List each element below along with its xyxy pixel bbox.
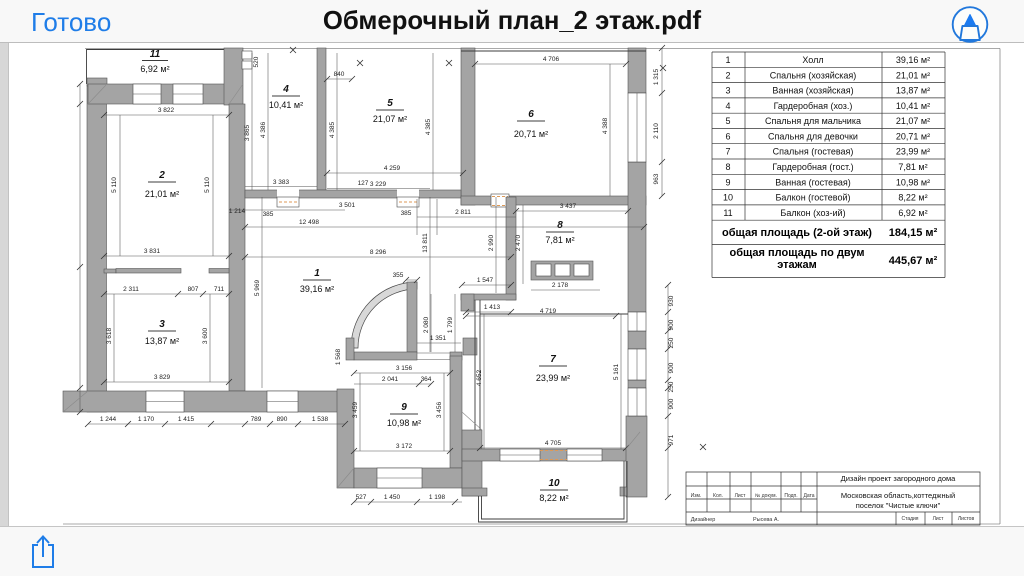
svg-text:3 831: 3 831	[144, 248, 161, 255]
svg-text:Стадия: Стадия	[901, 516, 918, 522]
svg-text:13,87 м²: 13,87 м²	[145, 336, 179, 346]
svg-text:527: 527	[356, 494, 367, 501]
svg-text:3 459: 3 459	[352, 401, 359, 418]
svg-text:5: 5	[387, 98, 393, 109]
svg-text:4 388: 4 388	[602, 117, 609, 134]
svg-text:4 652: 4 652	[476, 369, 483, 386]
svg-text:2 990: 2 990	[488, 234, 495, 251]
svg-text:21,01 м²: 21,01 м²	[145, 189, 179, 199]
svg-text:6,92 м²: 6,92 м²	[898, 208, 927, 218]
svg-text:7,81 м²: 7,81 м²	[898, 162, 927, 172]
svg-text:Ванная (гостевая): Ванная (гостевая)	[775, 177, 851, 187]
svg-text:6: 6	[528, 109, 534, 120]
svg-text:Спальня (гостевая): Спальня (гостевая)	[773, 147, 854, 157]
svg-text:3 600: 3 600	[202, 327, 209, 344]
svg-text:13,87 м²: 13,87 м²	[896, 86, 930, 96]
svg-text:1 214: 1 214	[229, 208, 246, 215]
svg-text:10,98 м²: 10,98 м²	[896, 177, 930, 187]
svg-text:3 156: 3 156	[396, 365, 413, 372]
svg-text:900: 900	[668, 319, 675, 330]
svg-text:1 351: 1 351	[430, 335, 447, 342]
svg-text:13 811: 13 811	[422, 233, 429, 253]
svg-text:1 413: 1 413	[484, 304, 501, 311]
svg-text:20,71 м²: 20,71 м²	[514, 129, 548, 139]
svg-text:3 456: 3 456	[436, 401, 443, 418]
svg-text:4: 4	[725, 101, 730, 111]
svg-text:9: 9	[401, 402, 407, 413]
svg-text:7,81 м²: 7,81 м²	[545, 235, 574, 245]
svg-text:2 811: 2 811	[455, 209, 471, 216]
svg-text:4: 4	[282, 84, 289, 95]
svg-text:Спальня для девочки: Спальня для девочки	[768, 131, 858, 141]
svg-text:3 822: 3 822	[158, 107, 175, 114]
svg-text:2: 2	[725, 70, 730, 80]
svg-text:7: 7	[725, 147, 730, 157]
svg-text:930: 930	[668, 295, 675, 306]
svg-text:Балкон (гостевой): Балкон (гостевой)	[775, 193, 850, 203]
svg-text:1 568: 1 568	[335, 348, 342, 365]
svg-text:21,07 м²: 21,07 м²	[373, 114, 407, 124]
svg-text:Ванная (хозяйская): Ванная (хозяйская)	[772, 86, 853, 96]
svg-text:20,71 м²: 20,71 м²	[896, 131, 930, 141]
svg-text:3 437: 3 437	[560, 203, 577, 210]
svg-text:10,98 м²: 10,98 м²	[387, 418, 421, 428]
svg-text:4 385: 4 385	[425, 118, 432, 135]
svg-text:3 229: 3 229	[370, 181, 387, 188]
svg-text:840: 840	[334, 71, 345, 78]
svg-text:3 501: 3 501	[339, 202, 356, 209]
svg-text:250: 250	[668, 381, 675, 392]
svg-text:1 538: 1 538	[312, 416, 329, 423]
svg-text:10: 10	[723, 193, 733, 203]
svg-text:5 969: 5 969	[254, 279, 261, 296]
svg-text:385: 385	[263, 211, 274, 218]
svg-text:7: 7	[550, 354, 556, 365]
svg-text:4 385: 4 385	[329, 121, 336, 138]
svg-text:11: 11	[723, 208, 732, 218]
svg-text:21,07 м²: 21,07 м²	[896, 116, 930, 126]
svg-text:5: 5	[725, 116, 730, 126]
svg-text:711: 711	[214, 286, 225, 293]
svg-text:6: 6	[725, 131, 730, 141]
svg-text:11: 11	[150, 49, 161, 60]
svg-text:Листов: Листов	[958, 516, 975, 522]
svg-text:2 080: 2 080	[423, 316, 430, 333]
svg-text:445,67 м²: 445,67 м²	[889, 255, 938, 267]
svg-text:Спальня (хозяйская): Спальня (хозяйская)	[770, 70, 857, 80]
svg-text:4 259: 4 259	[384, 165, 401, 172]
svg-text:2: 2	[158, 170, 165, 181]
svg-text:12 498: 12 498	[299, 219, 319, 226]
svg-text:3 172: 3 172	[396, 443, 413, 450]
svg-text:Рысева А.: Рысева А.	[753, 517, 780, 523]
svg-text:520: 520	[253, 56, 260, 67]
svg-text:1 244: 1 244	[100, 416, 117, 423]
svg-text:21,01 м²: 21,01 м²	[896, 70, 930, 80]
svg-text:3 618: 3 618	[106, 327, 113, 344]
svg-text:1 547: 1 547	[477, 277, 494, 284]
svg-text:250: 250	[668, 337, 675, 348]
svg-text:1 450: 1 450	[384, 494, 401, 501]
svg-text:Подп.: Подп.	[784, 493, 797, 499]
svg-text:Изм.: Изм.	[691, 493, 702, 499]
svg-text:963: 963	[653, 173, 660, 184]
svg-text:Спальня для мальчика: Спальня для мальчика	[765, 116, 861, 126]
svg-text:1: 1	[725, 55, 730, 65]
svg-text:127: 127	[358, 180, 369, 187]
svg-text:2 470: 2 470	[515, 234, 522, 251]
svg-text:2 110: 2 110	[653, 123, 660, 139]
svg-text:1 170: 1 170	[138, 416, 155, 423]
svg-text:3 829: 3 829	[154, 374, 171, 381]
svg-text:4 706: 4 706	[543, 56, 560, 63]
svg-text:Московская область,коттеджный: Московская область,коттеджный	[841, 491, 955, 500]
svg-text:355: 355	[393, 272, 404, 279]
svg-text:Холл: Холл	[802, 55, 823, 65]
svg-text:8: 8	[725, 162, 730, 172]
svg-text:1 799: 1 799	[447, 316, 454, 333]
svg-text:поселок "Чистые ключи": поселок "Чистые ключи"	[856, 501, 941, 510]
svg-text:8 296: 8 296	[370, 249, 387, 256]
svg-text:10,41 м²: 10,41 м²	[896, 101, 930, 111]
svg-text:5 161: 5 161	[613, 363, 620, 380]
svg-text:1 315: 1 315	[653, 68, 660, 85]
svg-text:8,22 м²: 8,22 м²	[539, 493, 568, 503]
svg-text:Дизайнер: Дизайнер	[691, 516, 716, 523]
svg-text:3: 3	[725, 86, 730, 96]
svg-text:2 311: 2 311	[123, 286, 139, 293]
svg-text:8: 8	[557, 220, 563, 231]
svg-text:789: 789	[251, 416, 262, 423]
svg-text:364: 364	[421, 376, 432, 383]
svg-text:5 110: 5 110	[204, 177, 211, 193]
svg-text:Дата: Дата	[803, 493, 814, 499]
svg-text:1: 1	[314, 268, 320, 279]
svg-text:3 865: 3 865	[244, 124, 251, 141]
svg-text:807: 807	[188, 286, 199, 293]
svg-text:8,22 м²: 8,22 м²	[898, 193, 927, 203]
svg-text:3 383: 3 383	[273, 179, 290, 186]
svg-text:3: 3	[159, 319, 165, 330]
svg-text:4 719: 4 719	[540, 308, 557, 315]
svg-text:Гардеробная (хоз.): Гардеробная (хоз.)	[774, 101, 853, 111]
svg-text:39,16 м²: 39,16 м²	[896, 55, 930, 65]
svg-text:4 386: 4 386	[260, 121, 267, 138]
svg-text:Дизайн проект загородного дома: Дизайн проект загородного дома	[841, 474, 957, 483]
svg-text:6,92 м²: 6,92 м²	[140, 64, 169, 74]
svg-text:Лист: Лист	[933, 516, 945, 522]
svg-text:1 415: 1 415	[178, 416, 195, 423]
svg-text:Лист: Лист	[735, 493, 747, 499]
svg-text:Гардеробная (гост.): Гардеробная (гост.)	[772, 162, 853, 172]
svg-text:39,16 м²: 39,16 м²	[300, 284, 334, 294]
svg-text:10,41 м²: 10,41 м²	[269, 100, 303, 110]
svg-text:23,99 м²: 23,99 м²	[536, 373, 570, 383]
svg-text:10: 10	[548, 478, 560, 489]
svg-text:Балкон (хоз-ий): Балкон (хоз-ий)	[780, 208, 845, 218]
svg-text:5 110: 5 110	[111, 177, 118, 193]
svg-text:9: 9	[725, 177, 730, 187]
svg-text:2 178: 2 178	[552, 282, 569, 289]
svg-text:1 198: 1 198	[429, 494, 446, 501]
svg-text:4 705: 4 705	[545, 440, 562, 447]
svg-text:этажам: этажам	[777, 259, 817, 271]
svg-text:890: 890	[277, 416, 288, 423]
svg-text:Кол.: Кол.	[713, 493, 723, 499]
svg-text:23,99 м²: 23,99 м²	[896, 147, 930, 157]
svg-text:900: 900	[668, 398, 675, 409]
svg-text:385: 385	[401, 210, 412, 217]
svg-text:общая площадь по двум: общая площадь по двум	[729, 247, 864, 259]
svg-text:900: 900	[668, 362, 675, 373]
svg-text:184,15 м²: 184,15 м²	[889, 227, 938, 239]
svg-text:2 041: 2 041	[382, 376, 399, 383]
svg-text:971: 971	[668, 434, 675, 445]
svg-text:№ докум.: № докум.	[755, 493, 777, 499]
svg-text:общая площадь (2-ой этаж): общая площадь (2-ой этаж)	[722, 227, 872, 239]
